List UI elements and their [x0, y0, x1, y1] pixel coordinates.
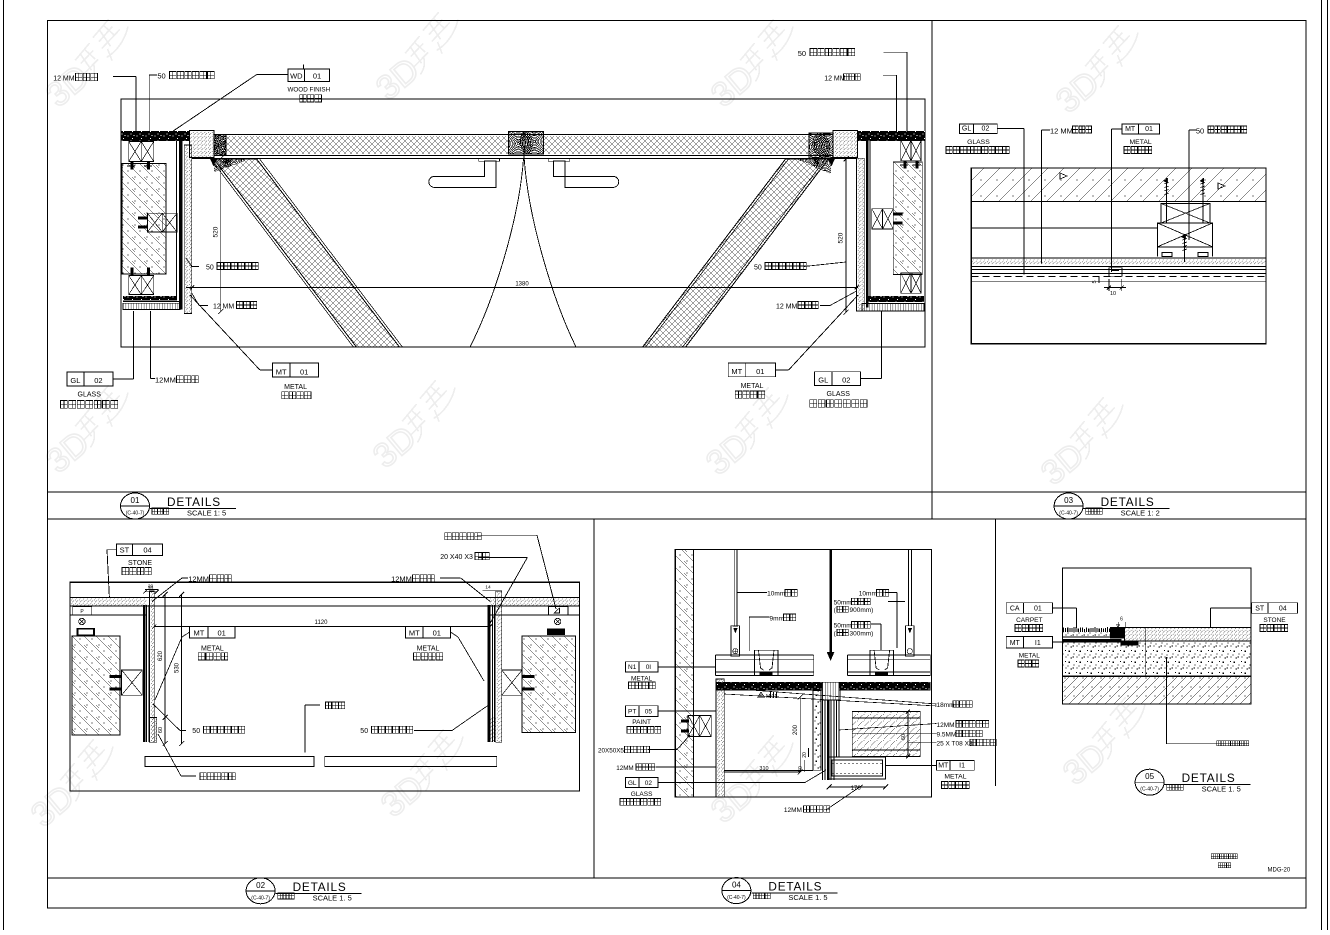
svg-text:GLASS: GLASS	[827, 391, 851, 398]
svg-text:DETAILS: DETAILS	[1182, 771, 1236, 785]
svg-text:I1: I1	[1035, 640, 1041, 647]
svg-text:GL: GL	[70, 376, 80, 385]
svg-text:03: 03	[1064, 496, 1073, 505]
svg-text:METAL: METAL	[1019, 653, 1041, 660]
svg-text:01: 01	[756, 367, 764, 376]
svg-text:PT: PT	[628, 709, 636, 716]
svg-text:14: 14	[485, 585, 491, 591]
svg-text:METAL: METAL	[631, 675, 653, 682]
svg-text:12MM: 12MM	[784, 807, 802, 814]
svg-text:50: 50	[1196, 126, 1204, 135]
svg-text:02: 02	[645, 780, 653, 787]
svg-text:200: 200	[793, 724, 799, 735]
svg-text:MT: MT	[1010, 640, 1021, 647]
svg-text:MT: MT	[276, 367, 287, 376]
svg-text:9mm: 9mm	[770, 615, 784, 622]
svg-text:20 X40 X3: 20 X40 X3	[440, 554, 473, 561]
svg-text:04: 04	[1279, 606, 1287, 613]
svg-text:CA: CA	[1010, 606, 1020, 613]
svg-text:MT: MT	[193, 628, 204, 637]
svg-text:STONE: STONE	[1263, 617, 1286, 624]
svg-text:20X50X5: 20X50X5	[598, 748, 624, 755]
svg-text:12MM: 12MM	[937, 722, 955, 729]
svg-text:SCALE 1. 5: SCALE 1. 5	[1202, 785, 1241, 794]
svg-text:MDG-20: MDG-20	[1268, 868, 1291, 874]
svg-text:I1: I1	[959, 763, 965, 770]
svg-text:50: 50	[192, 728, 200, 735]
svg-text:9.5MM: 9.5MM	[937, 732, 957, 739]
svg-text:05: 05	[1145, 772, 1154, 781]
svg-text:310: 310	[759, 766, 768, 772]
svg-text:20: 20	[802, 752, 808, 758]
svg-text:PAINT: PAINT	[632, 719, 651, 726]
svg-text:12 MM: 12 MM	[824, 76, 846, 83]
svg-text:MM: MM	[223, 304, 235, 311]
svg-text:530: 530	[175, 662, 181, 673]
svg-text:01: 01	[433, 628, 441, 637]
svg-text:50mm: 50mm	[834, 599, 852, 606]
svg-text:300mm): 300mm)	[850, 630, 874, 637]
svg-text:METAL: METAL	[944, 773, 966, 780]
svg-text:DETAILS: DETAILS	[768, 880, 822, 894]
svg-text:6: 6	[1120, 617, 1123, 623]
svg-text:5: 5	[1092, 280, 1098, 283]
svg-text:METAL: METAL	[201, 646, 224, 653]
svg-text:0I: 0I	[646, 664, 652, 671]
svg-text:01: 01	[1034, 606, 1042, 613]
svg-text:(C-40-7): (C-40-7)	[1059, 511, 1078, 517]
svg-text:1120: 1120	[315, 620, 329, 626]
svg-text:01: 01	[1145, 126, 1153, 133]
svg-text:50: 50	[798, 49, 806, 58]
svg-text:MT: MT	[938, 763, 949, 770]
svg-text:12 MM: 12 MM	[776, 304, 798, 311]
svg-text:12MM: 12MM	[188, 574, 209, 583]
svg-text:50: 50	[360, 728, 368, 735]
svg-text:DETAILS: DETAILS	[1101, 495, 1155, 509]
svg-text:(C-40-7): (C-40-7)	[126, 511, 145, 517]
svg-text:50mm: 50mm	[834, 623, 852, 630]
svg-text:02: 02	[842, 376, 850, 385]
svg-text:02: 02	[982, 126, 990, 133]
svg-text:900mm): 900mm)	[850, 607, 874, 614]
svg-text:MT: MT	[409, 628, 420, 637]
svg-text:04: 04	[143, 546, 151, 555]
svg-text:ST: ST	[120, 546, 130, 555]
svg-text:60: 60	[158, 727, 164, 733]
svg-text:SCALE 1. 5: SCALE 1. 5	[788, 893, 827, 902]
svg-text:MT: MT	[731, 367, 742, 376]
svg-text:SCALE 1. 5: SCALE 1. 5	[313, 893, 352, 902]
svg-text:GL: GL	[818, 376, 828, 385]
svg-text:50: 50	[754, 265, 762, 272]
svg-text:50: 50	[206, 265, 214, 272]
svg-text:10mm: 10mm	[859, 591, 877, 598]
svg-text:(C-40-7): (C-40-7)	[251, 895, 270, 901]
svg-text:CARPET: CARPET	[1016, 617, 1042, 624]
svg-text:04: 04	[732, 881, 741, 890]
svg-text:05: 05	[645, 709, 653, 716]
svg-text:DETAILS: DETAILS	[167, 495, 221, 509]
svg-text:520: 520	[213, 226, 220, 237]
svg-text:20: 20	[148, 586, 154, 592]
svg-text:02: 02	[94, 376, 102, 385]
svg-text:DETAILS: DETAILS	[293, 880, 347, 894]
svg-text:01: 01	[217, 628, 225, 637]
svg-text:SCALE 1: 5: SCALE 1: 5	[187, 509, 226, 518]
svg-text:SCALE 1: 2: SCALE 1: 2	[1121, 509, 1160, 518]
svg-text:GL: GL	[628, 780, 637, 787]
svg-text:METAL: METAL	[284, 384, 307, 391]
svg-text:GL: GL	[962, 126, 971, 133]
svg-text:(C-40-7): (C-40-7)	[1140, 787, 1159, 793]
svg-text:GLASS: GLASS	[631, 791, 653, 798]
svg-text:18mm: 18mm	[937, 702, 955, 709]
svg-text:01: 01	[131, 496, 140, 505]
svg-text:GLASS: GLASS	[967, 139, 990, 146]
svg-text:12MM: 12MM	[616, 765, 634, 772]
svg-text:METAL: METAL	[417, 646, 440, 653]
svg-text:STONE: STONE	[128, 560, 152, 567]
svg-text:12MM: 12MM	[155, 376, 176, 385]
svg-text:METAL: METAL	[741, 383, 764, 390]
svg-text:01: 01	[313, 72, 321, 81]
svg-text:01: 01	[300, 367, 308, 376]
svg-text:50: 50	[798, 766, 804, 772]
svg-text:12MM: 12MM	[391, 574, 412, 583]
svg-text:WD: WD	[290, 72, 303, 81]
svg-text:60: 60	[901, 734, 907, 740]
svg-text:620: 620	[158, 650, 164, 661]
svg-text:METAL: METAL	[1130, 139, 1152, 146]
svg-text:12 MM: 12 MM	[53, 75, 75, 82]
svg-text:02: 02	[256, 881, 265, 890]
svg-text:MT: MT	[1125, 126, 1136, 133]
svg-text:10: 10	[1110, 291, 1116, 297]
svg-text:12: 12	[213, 304, 221, 311]
svg-text:GLASS: GLASS	[78, 392, 102, 399]
svg-text:N1: N1	[628, 664, 637, 671]
svg-text:50: 50	[157, 72, 165, 81]
svg-text:12 MM: 12 MM	[1050, 126, 1073, 135]
svg-text:10mm: 10mm	[767, 591, 785, 598]
svg-text:ST: ST	[1255, 606, 1265, 613]
svg-text:(C-40-7): (C-40-7)	[727, 895, 746, 901]
svg-text:WOOD FINISH: WOOD FINISH	[287, 86, 330, 93]
svg-text:520: 520	[838, 232, 845, 243]
svg-text:25 X T08 X3: 25 X T08 X3	[937, 741, 973, 748]
svg-text:1380: 1380	[515, 282, 529, 288]
